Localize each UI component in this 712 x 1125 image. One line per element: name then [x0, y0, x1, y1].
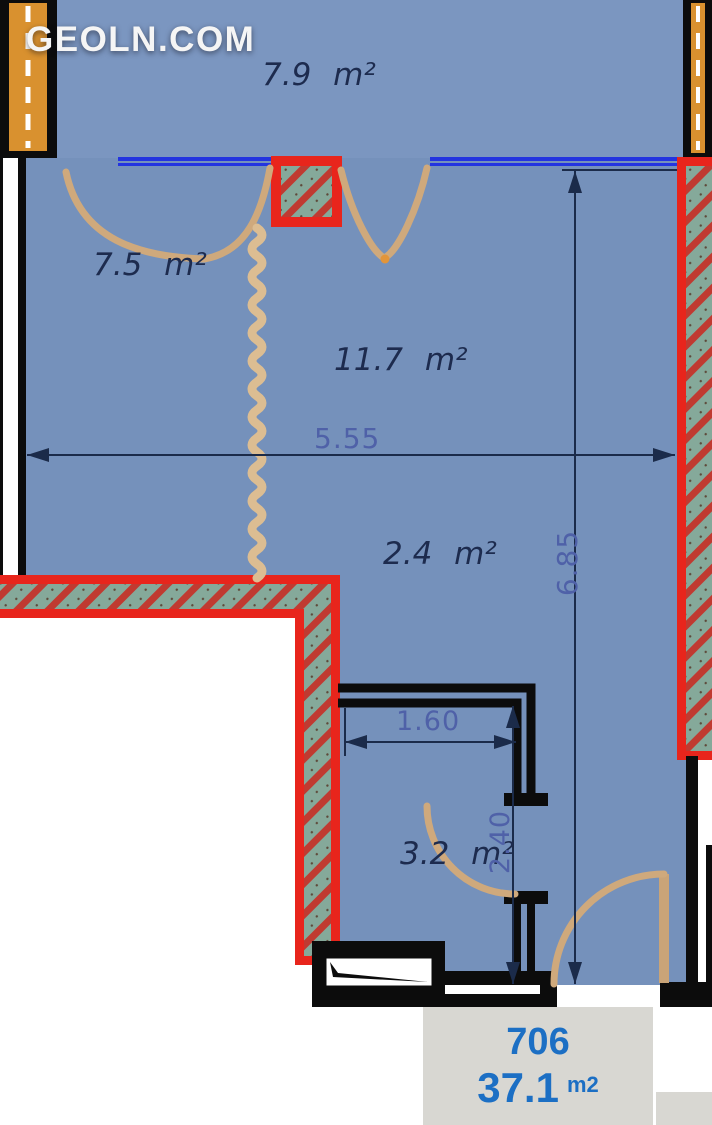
room-label-balcony: 7.9 m²	[262, 57, 376, 93]
red-hatched-wall-left-L	[0, 575, 340, 965]
room-label-hallway: 2.4 m²	[383, 536, 497, 572]
floor-plan-drawing	[0, 0, 712, 1125]
dimension-height: 6.85	[551, 521, 583, 605]
floor-area	[25, 0, 688, 985]
neighbor-label-box-fragment	[656, 1092, 712, 1125]
unit-label-box: 706 37.1m2	[423, 1007, 653, 1125]
floor-plan: GEOLN.COM 7.9 m² 7.5 m² 11.7 m² 2.4 m² 3…	[0, 0, 712, 1125]
unit-area-value: 37.1	[477, 1064, 559, 1111]
watermark-logo: GEOLN.COM	[26, 20, 255, 60]
red-hatched-wall-right	[677, 157, 712, 760]
dimension-bath-width: 1.60	[396, 706, 460, 737]
left-wall	[0, 158, 26, 578]
dimension-bath-height: 2.40	[485, 800, 517, 884]
unit-area-unit: m2	[567, 1072, 599, 1097]
dimension-width: 5.55	[314, 422, 380, 455]
orange-wall-top-right	[683, 0, 712, 158]
unit-area: 37.1m2	[477, 1062, 599, 1111]
structural-column	[271, 156, 342, 227]
unit-number: 706	[506, 1022, 569, 1062]
room-label-left: 7.5 m²	[93, 247, 207, 283]
room-label-living: 11.7 m²	[334, 342, 468, 378]
